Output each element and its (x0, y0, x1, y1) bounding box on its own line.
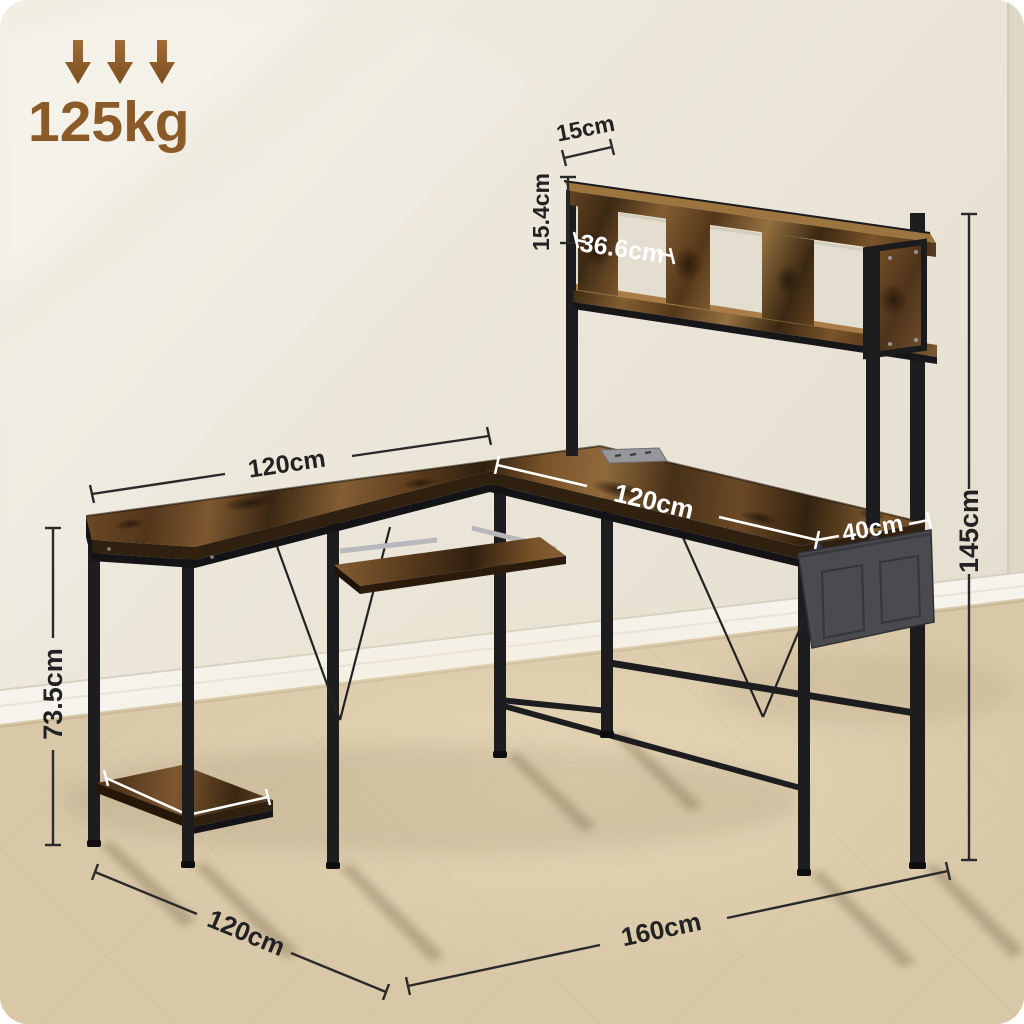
hutch-front-right-post (866, 248, 880, 528)
desk-dimension-illustration: 15cm 15.4cm 36.6cm 120cm 120cm 40cm 145c… (0, 0, 1024, 1024)
overall-height-label: 145cm (954, 489, 984, 573)
rear-left-leg (88, 540, 100, 845)
product-screenshot: 15cm 15.4cm 36.6cm 120cm 120cm 40cm 145c… (0, 0, 1024, 1024)
max-load-value: 125kg (28, 90, 190, 154)
corner-leg (494, 476, 506, 757)
down-arrow-icon (65, 40, 175, 84)
desktop-height-label: 73.5cm (38, 648, 68, 740)
screw-dot (107, 547, 111, 551)
desktop-power-strip (601, 448, 667, 463)
right-wall-corner (1008, 0, 1024, 640)
screw-dot (210, 555, 214, 559)
hutch-height-label: 15.4cm (528, 173, 554, 251)
hutch-end-knot (879, 284, 907, 316)
front-left-leg (182, 552, 194, 867)
